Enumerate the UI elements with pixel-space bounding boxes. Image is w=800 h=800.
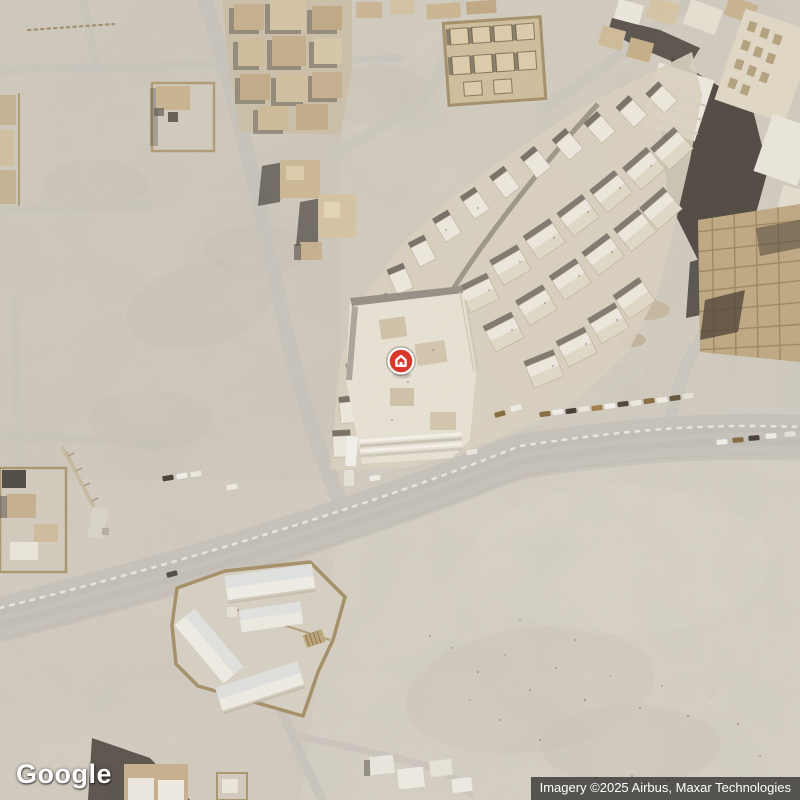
satellite-map[interactable]	[0, 0, 800, 800]
marker-dot	[390, 350, 413, 373]
map-viewport[interactable]: Google Imagery ©2025 Airbus, Maxar Techn…	[0, 0, 800, 800]
grain-overlay	[0, 0, 800, 800]
attribution: Imagery ©2025 Airbus, Maxar Technologies	[531, 777, 800, 800]
google-logo[interactable]: Google	[16, 759, 112, 790]
